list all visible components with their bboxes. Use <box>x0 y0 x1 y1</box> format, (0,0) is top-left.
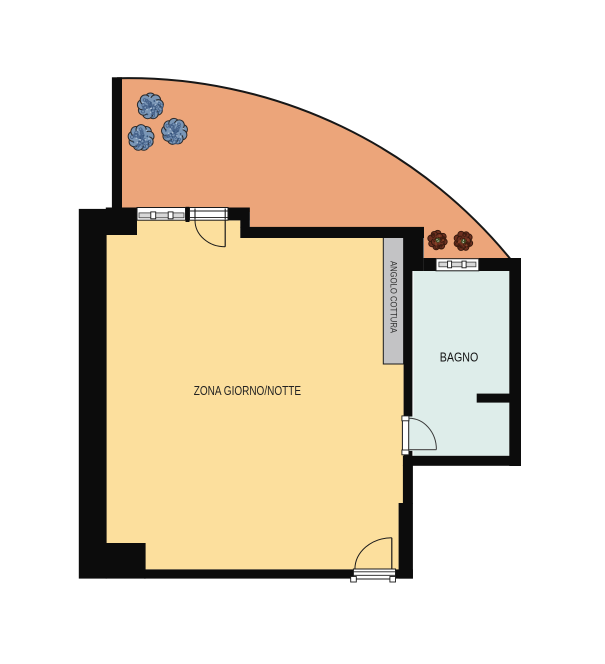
svg-text:ZONA GIORNO/NOTTE: ZONA GIORNO/NOTTE <box>194 383 302 398</box>
svg-text:ANGOLO COTTURA: ANGOLO COTTURA <box>388 261 399 334</box>
svg-text:BAGNO: BAGNO <box>440 350 479 365</box>
